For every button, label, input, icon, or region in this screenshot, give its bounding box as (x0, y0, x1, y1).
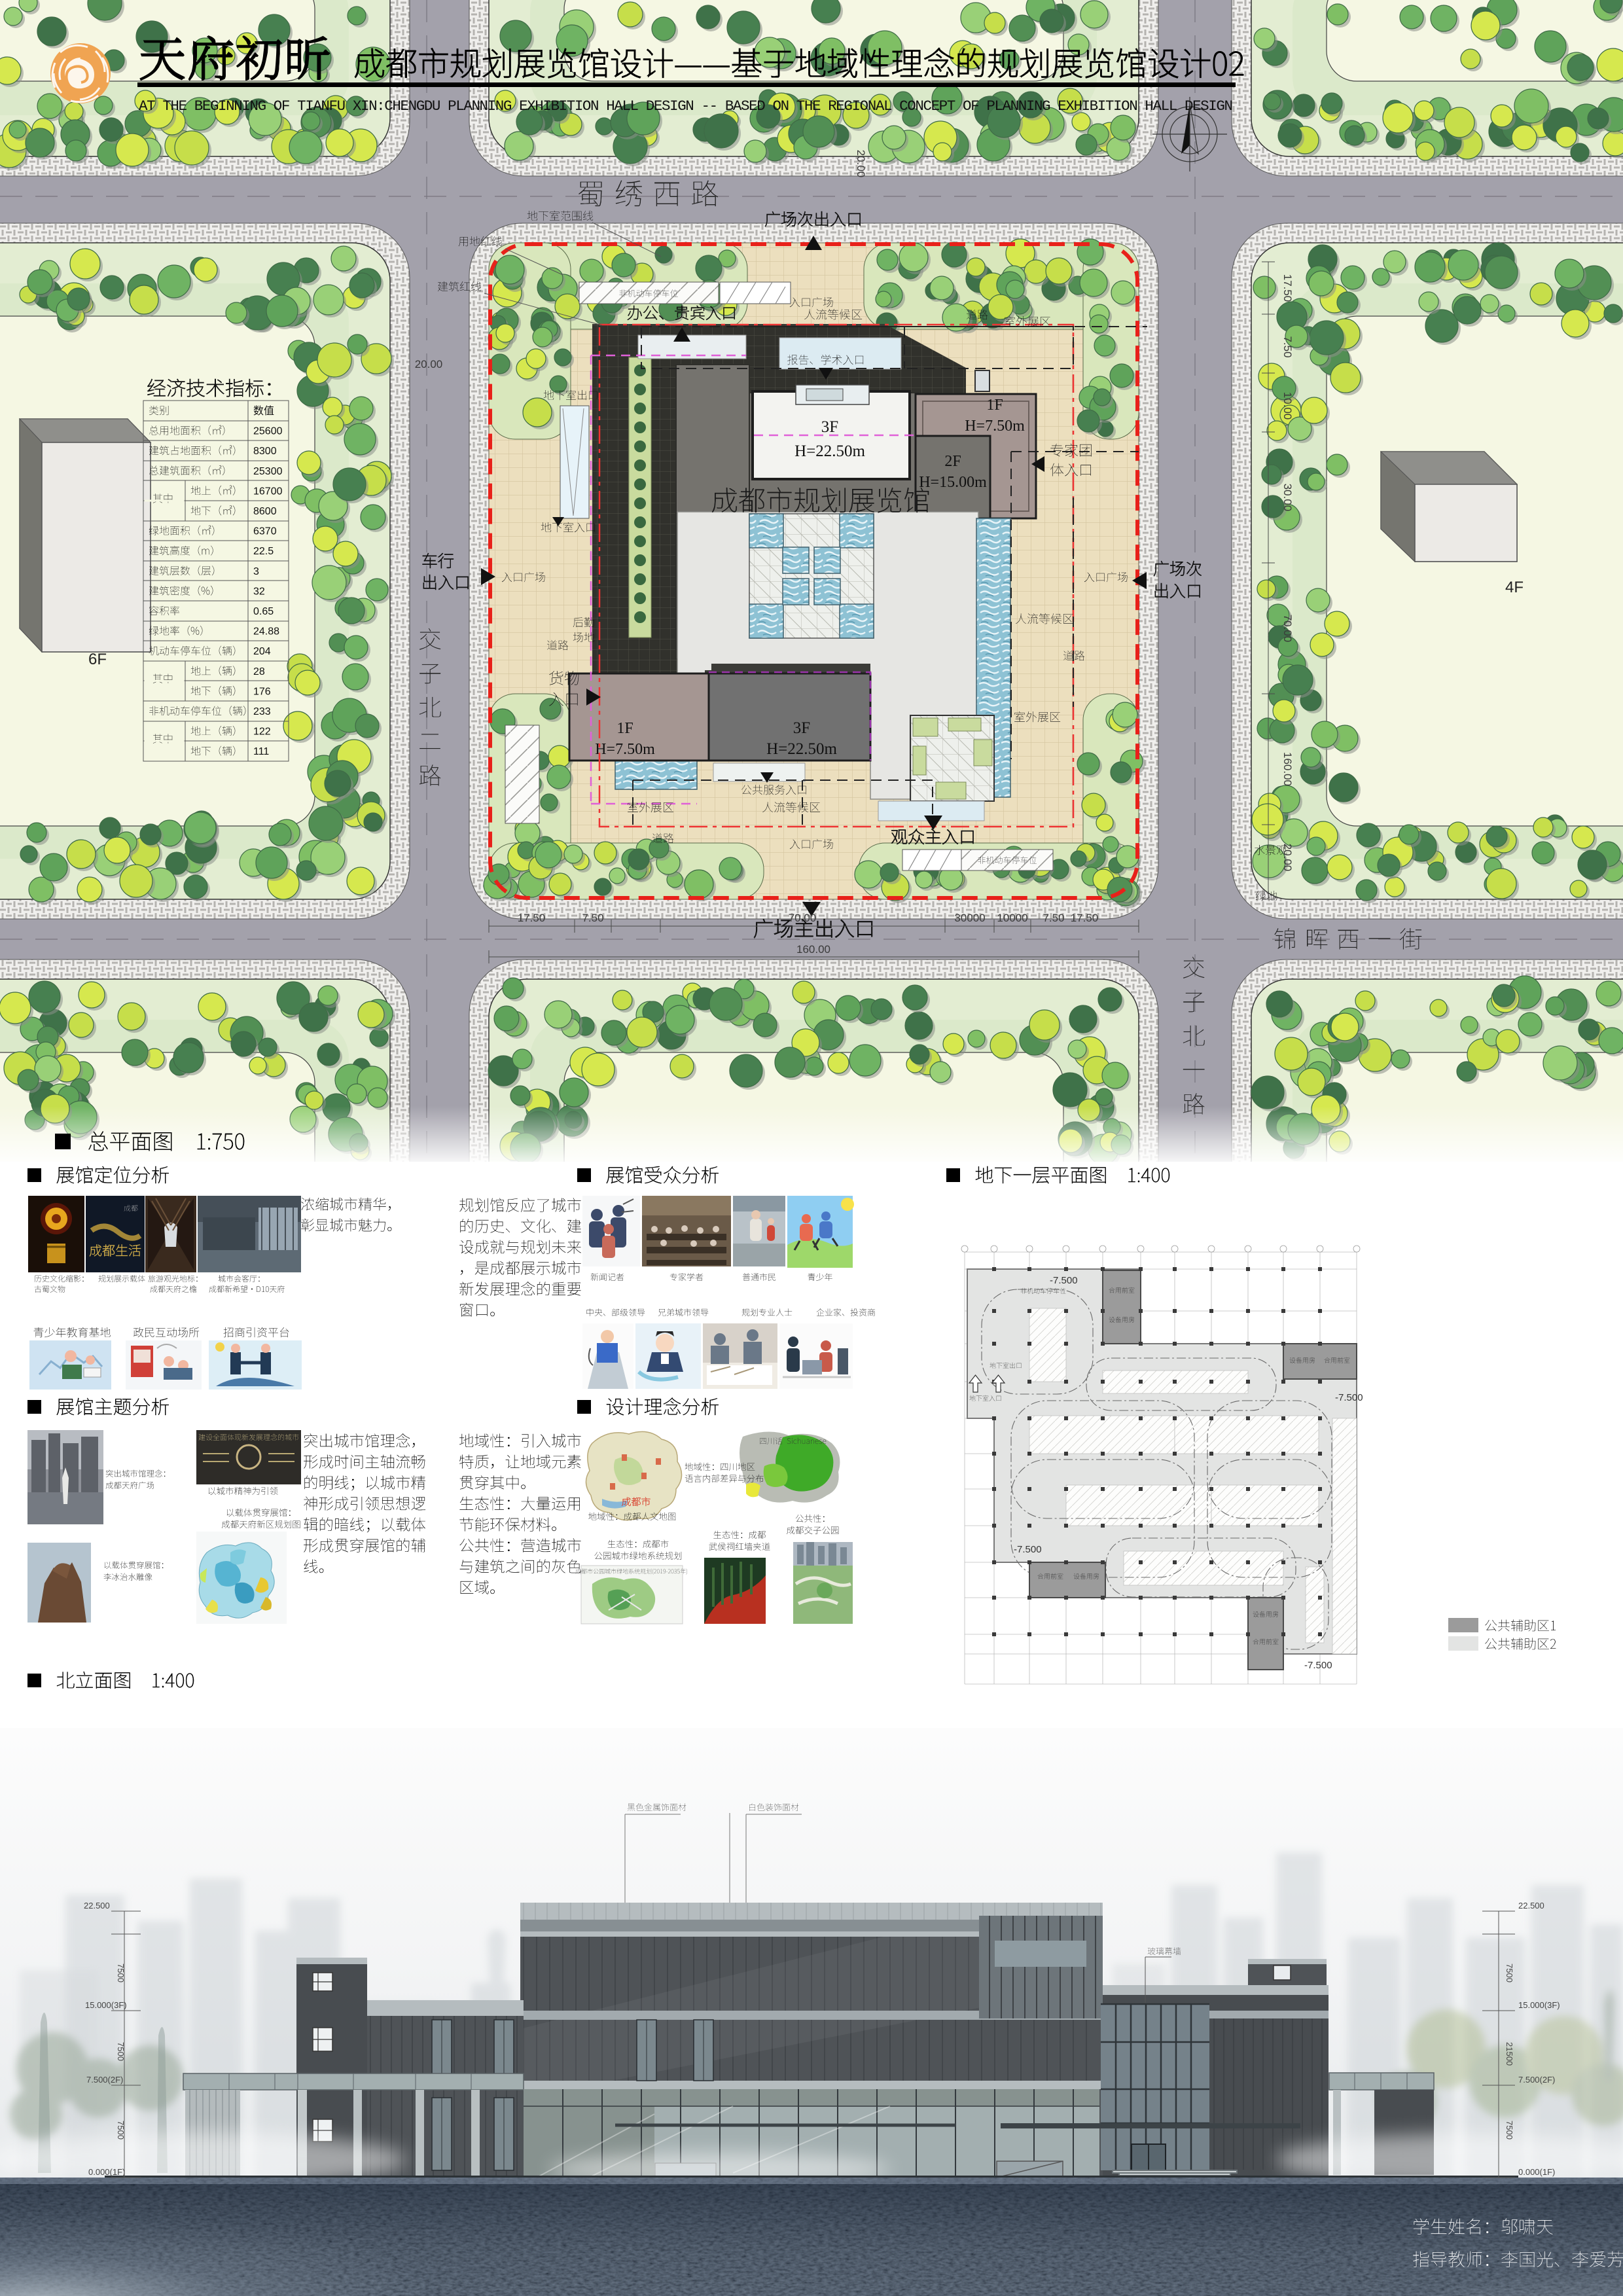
svg-text:10000: 10000 (997, 912, 1027, 924)
svg-text:2F: 2F (944, 453, 961, 470)
svg-text:8600: 8600 (253, 506, 277, 517)
svg-text:AT THE BEGINNING OF TIANFU XIN: AT THE BEGINNING OF TIANFU XIN:CHENGDU P… (139, 98, 1233, 115)
svg-text:7.50: 7.50 (1281, 336, 1294, 357)
svg-text:-7.500: -7.500 (1014, 1544, 1042, 1555)
svg-text:1F: 1F (986, 397, 1003, 414)
svg-text:0.000(1F): 0.000(1F) (1518, 2167, 1555, 2177)
svg-text:32: 32 (253, 586, 265, 597)
svg-text:160.00: 160.00 (1281, 752, 1294, 786)
svg-text:25600: 25600 (253, 426, 283, 437)
svg-text:20.00: 20.00 (415, 358, 443, 370)
svg-text:30000: 30000 (954, 912, 985, 924)
svg-text:15.000(3F): 15.000(3F) (85, 2000, 127, 2010)
svg-text:17.50: 17.50 (1071, 912, 1099, 924)
svg-text:24.88: 24.88 (253, 626, 279, 637)
svg-text:3F: 3F (821, 418, 838, 436)
svg-text:-7.500: -7.500 (1335, 1392, 1363, 1403)
svg-text:21500: 21500 (1505, 2042, 1514, 2066)
svg-text:22.500: 22.500 (84, 1901, 110, 1910)
svg-text:28: 28 (253, 666, 265, 677)
svg-text:7.500(2F): 7.500(2F) (86, 2075, 123, 2085)
svg-text:7.50: 7.50 (582, 912, 603, 924)
svg-text:H=15.00m: H=15.00m (919, 474, 987, 491)
svg-text:7500: 7500 (116, 2121, 126, 2140)
svg-text:160.00: 160.00 (796, 943, 830, 956)
svg-text:10.00: 10.00 (1281, 392, 1294, 420)
svg-text:7500: 7500 (1505, 2121, 1514, 2140)
svg-text:25300: 25300 (253, 466, 283, 477)
svg-text:8300: 8300 (253, 446, 277, 457)
svg-text:7.50: 7.50 (1043, 912, 1064, 924)
svg-text:3: 3 (253, 566, 259, 577)
svg-text:176: 176 (253, 686, 271, 697)
svg-text:-7.500: -7.500 (1304, 1660, 1332, 1671)
svg-text:16700: 16700 (253, 486, 283, 497)
svg-text:22.5: 22.5 (253, 546, 274, 557)
svg-text:6370: 6370 (253, 526, 277, 537)
svg-text:70.00: 70.00 (789, 912, 817, 924)
svg-text:H=22.50m: H=22.50m (766, 740, 837, 758)
svg-text:H=7.50m: H=7.50m (965, 418, 1025, 435)
svg-text:17.50: 17.50 (1281, 274, 1294, 302)
svg-text:6F: 6F (88, 651, 107, 668)
svg-text:7500: 7500 (1505, 1964, 1514, 1982)
svg-text:H=7.50m: H=7.50m (595, 741, 655, 758)
svg-text:0.000(1F): 0.000(1F) (88, 2167, 125, 2177)
svg-text:-7.500: -7.500 (1050, 1275, 1078, 1286)
svg-text:20.00: 20.00 (1281, 844, 1294, 872)
svg-text:233: 233 (253, 706, 271, 717)
svg-text:17.50: 17.50 (518, 912, 546, 924)
svg-text:数值: 数值 (253, 405, 274, 417)
svg-text:15.000(3F): 15.000(3F) (1518, 2000, 1560, 2010)
svg-text:1F: 1F (616, 720, 633, 737)
svg-text:70.00: 70.00 (1281, 615, 1294, 643)
svg-text:111: 111 (253, 746, 269, 757)
svg-text:7.500(2F): 7.500(2F) (1518, 2075, 1555, 2085)
svg-text:7500: 7500 (116, 2042, 126, 2061)
svg-text:20.00: 20.00 (855, 150, 867, 178)
svg-text:4F: 4F (1505, 579, 1524, 596)
svg-text:30.00: 30.00 (1281, 484, 1294, 512)
svg-text:204: 204 (253, 646, 271, 657)
svg-text:3F: 3F (793, 719, 810, 737)
svg-text:H=22.50m: H=22.50m (794, 442, 865, 460)
svg-text:22.500: 22.500 (1518, 1901, 1544, 1910)
svg-text:0.65: 0.65 (253, 606, 274, 617)
svg-text:7500: 7500 (116, 1964, 126, 1982)
svg-text:122: 122 (253, 726, 271, 738)
